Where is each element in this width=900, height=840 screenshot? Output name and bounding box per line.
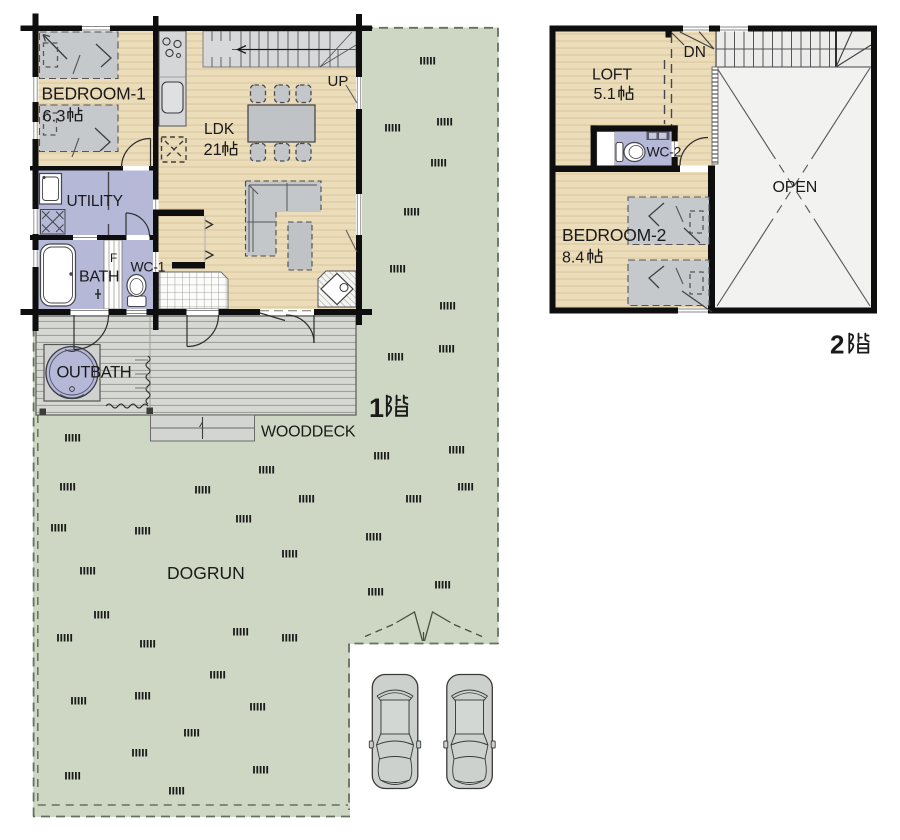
svg-text:OPEN: OPEN bbox=[773, 179, 818, 196]
svg-text:F: F bbox=[110, 251, 117, 265]
svg-text:LDK: LDK bbox=[204, 121, 235, 138]
svg-text:LOFT: LOFT bbox=[592, 67, 632, 84]
svg-text:DN: DN bbox=[684, 44, 706, 61]
svg-text:UTILITY: UTILITY bbox=[67, 193, 123, 210]
svg-text:UP: UP bbox=[328, 73, 349, 90]
svg-text:BATH: BATH bbox=[79, 269, 119, 286]
svg-text:1: 1 bbox=[369, 393, 384, 423]
svg-text:WC-2: WC-2 bbox=[647, 144, 682, 160]
svg-text:2: 2 bbox=[830, 330, 844, 360]
svg-text:BEDROOM-2: BEDROOM-2 bbox=[562, 225, 666, 245]
svg-text:6.3: 6.3 bbox=[43, 108, 66, 126]
svg-text:5.1: 5.1 bbox=[594, 86, 616, 103]
svg-text:WOODDECK: WOODDECK bbox=[261, 424, 356, 441]
svg-text:BEDROOM-1: BEDROOM-1 bbox=[42, 84, 146, 104]
svg-text:WC-1: WC-1 bbox=[131, 259, 166, 275]
svg-text:DOGRUN: DOGRUN bbox=[167, 563, 245, 583]
svg-text:OUTBATH: OUTBATH bbox=[57, 364, 132, 382]
svg-text:21: 21 bbox=[204, 141, 222, 159]
svg-text:8.4: 8.4 bbox=[562, 250, 584, 267]
